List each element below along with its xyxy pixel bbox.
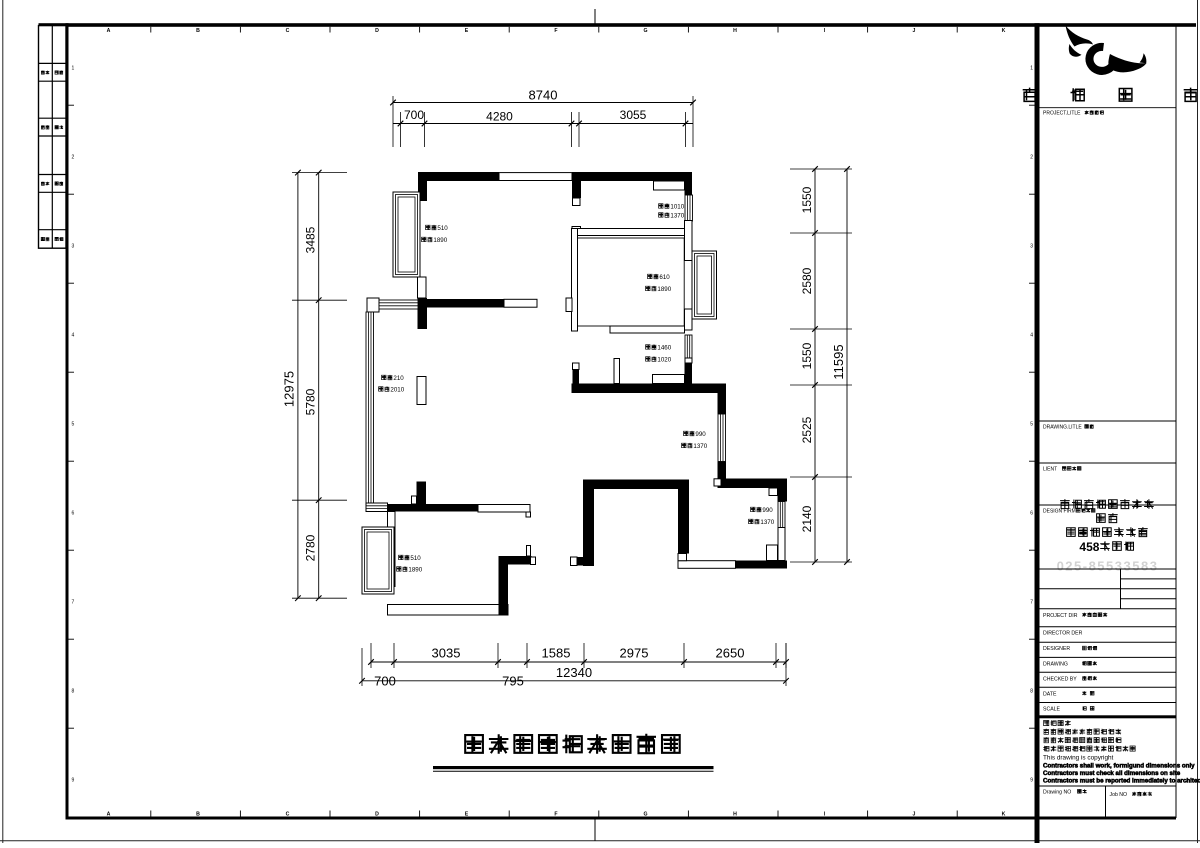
svg-text:8: 8	[72, 689, 75, 695]
svg-text:DESIGNER: DESIGNER	[1043, 646, 1070, 652]
svg-text:DATE: DATE	[1043, 691, 1057, 697]
svg-text:F: F	[554, 812, 557, 818]
svg-text:E: E	[465, 28, 469, 34]
svg-text:A: A	[107, 812, 111, 818]
svg-text:1890: 1890	[433, 237, 447, 244]
svg-text:C: C	[286, 812, 290, 818]
svg-text:510: 510	[437, 225, 448, 232]
svg-text:PROJECT.LITLE: PROJECT.LITLE	[1043, 111, 1081, 117]
svg-text:B: B	[196, 28, 200, 34]
svg-text:PROJECT DIR: PROJECT DIR	[1043, 613, 1078, 619]
svg-text:H: H	[733, 812, 737, 818]
svg-text:3055: 3055	[620, 108, 647, 122]
svg-text:9: 9	[72, 778, 75, 784]
svg-text:7: 7	[1030, 600, 1033, 606]
svg-text:C: C	[286, 28, 290, 34]
svg-text:11595: 11595	[831, 344, 846, 379]
svg-text:3: 3	[72, 244, 75, 250]
svg-text:4: 4	[1030, 333, 1033, 339]
svg-text:2: 2	[1030, 155, 1033, 161]
svg-text:510: 510	[410, 555, 421, 562]
svg-text:3485: 3485	[304, 226, 318, 253]
svg-text:458: 458	[1079, 540, 1099, 554]
svg-text:7: 7	[72, 600, 75, 606]
svg-text:2010: 2010	[390, 387, 404, 394]
svg-text:1370: 1370	[693, 443, 707, 450]
svg-text:2: 2	[72, 155, 75, 161]
svg-text:700: 700	[404, 108, 424, 122]
svg-text:Job NO: Job NO	[1110, 792, 1128, 798]
svg-text:8: 8	[1030, 689, 1033, 695]
svg-text:1550: 1550	[800, 186, 814, 213]
svg-text:1370: 1370	[760, 519, 774, 526]
svg-text:Contractors must be reported i: Contractors must be reported immediately…	[1043, 778, 1200, 785]
svg-text:1890: 1890	[657, 286, 671, 293]
svg-text:6: 6	[1030, 511, 1033, 517]
svg-text:2525: 2525	[800, 416, 814, 443]
svg-text:700: 700	[374, 674, 396, 689]
svg-text:795: 795	[502, 674, 524, 689]
svg-text:E: E	[465, 812, 469, 818]
svg-text:SCALE: SCALE	[1043, 707, 1061, 713]
svg-text:3035: 3035	[432, 646, 461, 661]
svg-text:1010: 1010	[670, 204, 684, 211]
svg-text:J: J	[913, 812, 916, 818]
svg-text:8740: 8740	[529, 88, 558, 103]
svg-text:G: G	[643, 812, 647, 818]
svg-text:5780: 5780	[304, 388, 318, 415]
svg-text:F: F	[554, 28, 557, 34]
svg-text:I: I	[824, 28, 826, 34]
svg-text:J: J	[913, 28, 916, 34]
svg-text:H: H	[733, 28, 737, 34]
svg-text:DRAWING: DRAWING	[1043, 661, 1068, 667]
svg-text:Contractors shall work, formig: Contractors shall work, formigund dimens…	[1043, 763, 1195, 770]
svg-text:1: 1	[72, 66, 75, 72]
svg-text:210: 210	[393, 375, 404, 382]
svg-text:D: D	[375, 812, 379, 818]
svg-text:K: K	[1002, 812, 1006, 818]
svg-text:2580: 2580	[800, 267, 814, 294]
svg-text:Drawing NO: Drawing NO	[1043, 790, 1071, 796]
svg-text:LIENT: LIENT	[1043, 467, 1057, 473]
svg-text:025-85533583: 025-85533583	[1057, 559, 1159, 574]
svg-text:1370: 1370	[670, 213, 684, 220]
svg-text:This drawing is copyright: This drawing is copyright	[1043, 755, 1114, 762]
svg-text:DIRECTOR DER: DIRECTOR DER	[1043, 631, 1083, 637]
svg-text:1585: 1585	[542, 646, 571, 661]
svg-text:610: 610	[659, 274, 670, 281]
svg-text:1020: 1020	[657, 357, 671, 364]
svg-text:CHECKED BY: CHECKED BY	[1043, 676, 1077, 682]
svg-text:B: B	[196, 812, 200, 818]
svg-text:DESIGN FIRM: DESIGN FIRM	[1043, 509, 1076, 515]
svg-text:12975: 12975	[282, 371, 297, 407]
svg-text:K: K	[1002, 28, 1006, 34]
svg-text:2140: 2140	[800, 505, 814, 532]
svg-text:DRAWING.LITLE: DRAWING.LITLE	[1043, 425, 1082, 431]
svg-text:Contractors must check all dim: Contractors must check all dimensions on…	[1043, 770, 1181, 777]
svg-text:990: 990	[762, 507, 773, 514]
svg-text:1: 1	[1030, 66, 1033, 72]
svg-text:A: A	[107, 28, 111, 34]
svg-text:1890: 1890	[408, 567, 422, 574]
svg-text:5: 5	[72, 422, 75, 428]
svg-text:2780: 2780	[304, 534, 318, 561]
svg-text:4: 4	[72, 333, 75, 339]
svg-text:1550: 1550	[800, 342, 814, 369]
svg-text:1460: 1460	[657, 345, 671, 352]
svg-text:9: 9	[1030, 778, 1033, 784]
svg-text:2650: 2650	[716, 646, 745, 661]
svg-text:4280: 4280	[486, 110, 513, 124]
svg-text:5: 5	[1030, 422, 1033, 428]
svg-text:3: 3	[1030, 244, 1033, 250]
svg-text:12340: 12340	[556, 665, 592, 680]
svg-text:D: D	[375, 28, 379, 34]
svg-text:2975: 2975	[620, 646, 649, 661]
svg-text:990: 990	[695, 431, 706, 438]
svg-text:6: 6	[72, 511, 75, 517]
svg-text:G: G	[643, 28, 647, 34]
